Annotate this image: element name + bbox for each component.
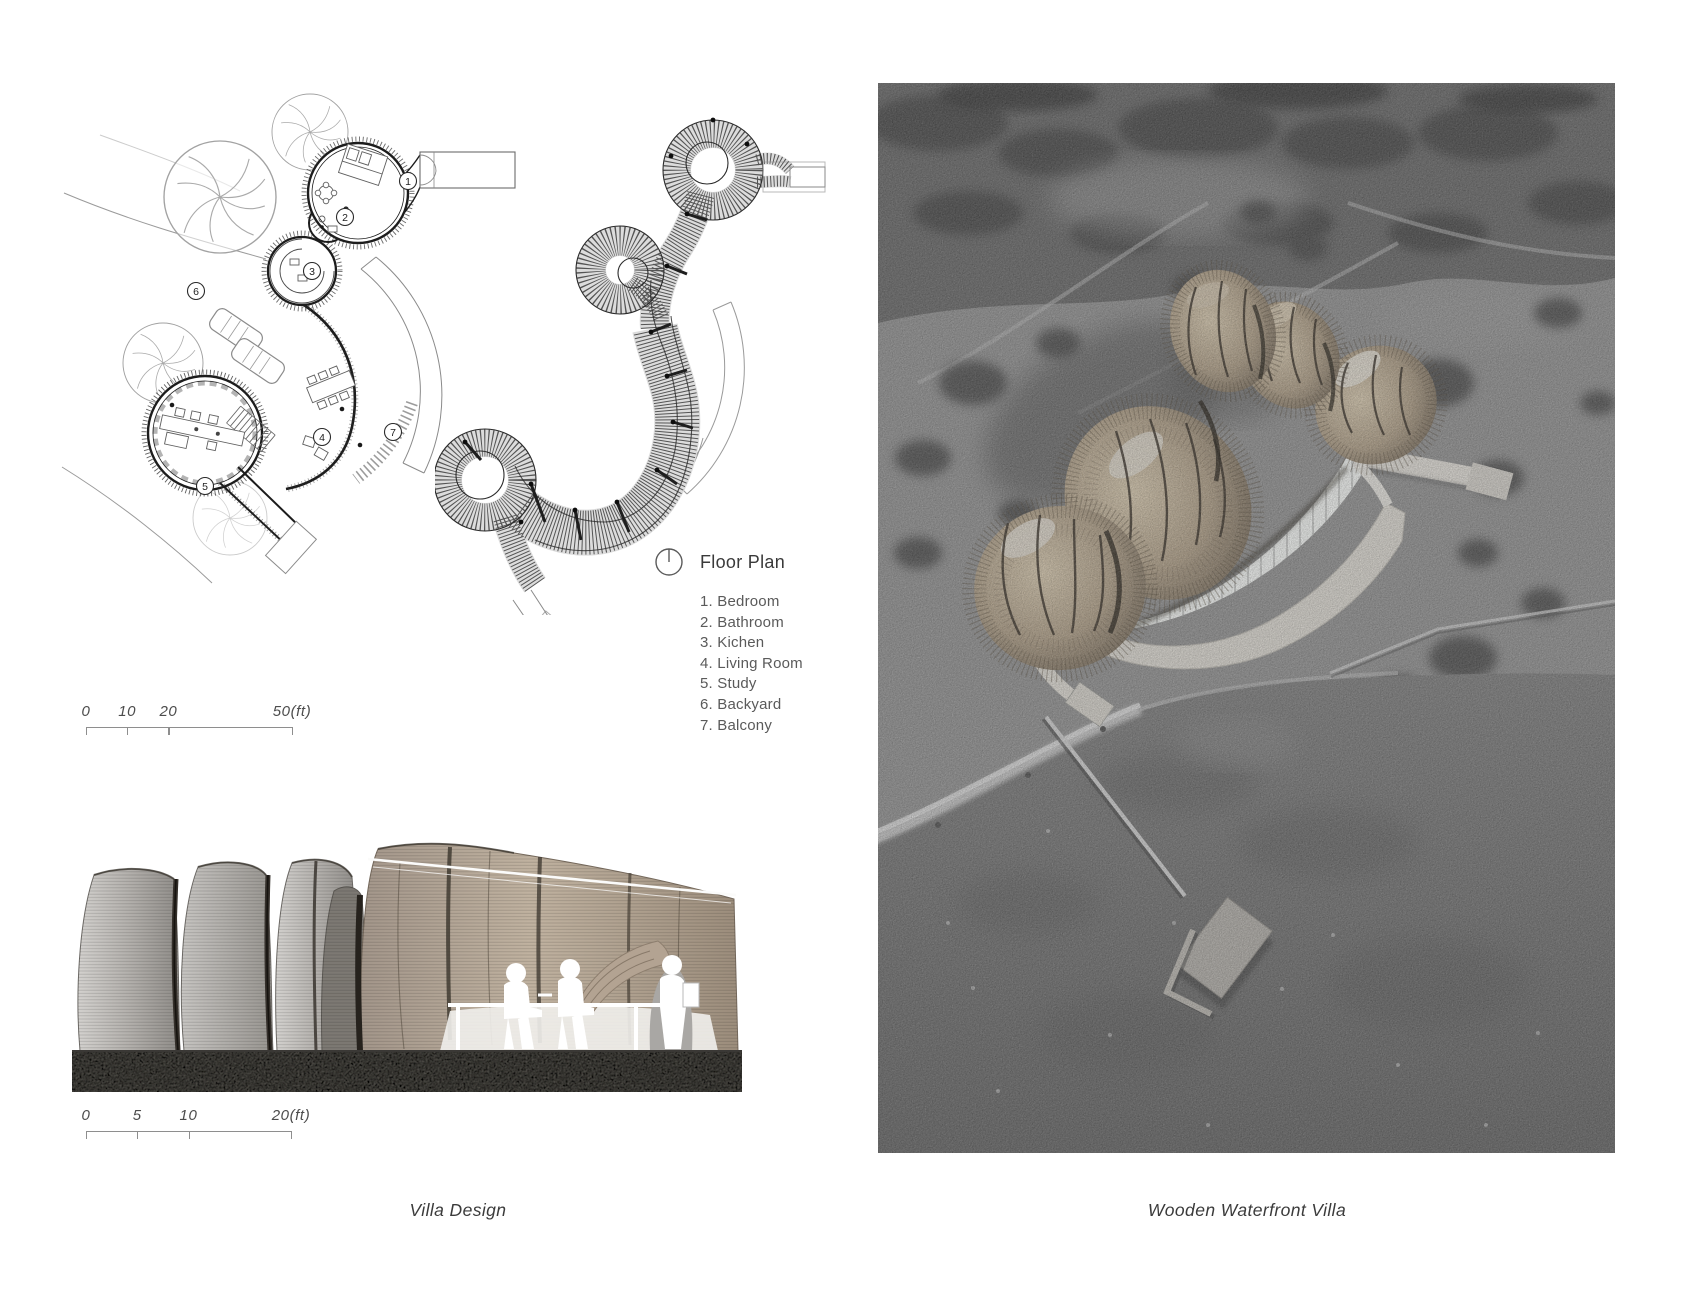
section-elevation (70, 835, 750, 1100)
segment-joints (463, 118, 750, 540)
rib-outlines (435, 120, 763, 551)
section-scalebar: 051020(ft) (86, 1104, 291, 1144)
legend-title: Floor Plan (700, 552, 785, 573)
scalebar-label: 0 (82, 1107, 91, 1124)
scalebar-label: 20(ft) (272, 1107, 311, 1124)
legend-item: 1. Bedroom (700, 592, 830, 613)
presentation-sheet: 1234567 (0, 0, 1700, 1306)
room-marker-number: 7 (390, 427, 396, 439)
legend-item: 3. Kichen (700, 633, 830, 654)
room-marker-number: 2 (342, 212, 348, 224)
floor-plan-structural (435, 70, 835, 615)
scalebar-tick (291, 1131, 292, 1139)
caption-left: Villa Design (288, 1200, 628, 1221)
scalebar-tick (127, 727, 128, 735)
legend-item: 6. Backyard (700, 695, 830, 716)
scalebar-label: 20 (159, 703, 177, 720)
scalebar-label: 0 (82, 703, 91, 720)
room-marker-number: 4 (319, 432, 325, 444)
legend-item: 2. Bathroom (700, 613, 830, 634)
ground-strip (72, 1050, 742, 1092)
room-marker-number: 5 (202, 481, 208, 493)
legend-item: 5. Study (700, 674, 830, 695)
scalebar-tick (189, 1131, 190, 1139)
grain-light (878, 83, 1615, 1153)
scalebar-label: 10 (180, 1107, 198, 1124)
legend-item: 4. Living Room (700, 654, 830, 675)
room-marker-number: 3 (309, 266, 315, 278)
scalebar-tick (86, 1131, 87, 1139)
scalebar-label: 50(ft) (273, 703, 312, 720)
north-indicator-icon (654, 547, 684, 577)
room-marker-number: 1 (405, 176, 411, 188)
parked-cars (207, 306, 287, 386)
caption-right: Wooden Waterfront Villa (1077, 1200, 1417, 1221)
balcony-arcs (356, 257, 442, 479)
legend-list: 1. Bedroom2. Bathroom3. Kichen4. Living … (700, 592, 830, 736)
scalebar-label: 10 (118, 703, 136, 720)
carried-board (683, 983, 699, 1007)
scalebar-label: 5 (133, 1107, 142, 1124)
room-marker-number: 6 (193, 286, 199, 298)
scalebar-tick (86, 727, 87, 735)
plan-scalebar: 0102050(ft) (86, 700, 292, 740)
scalebar-tick (168, 727, 169, 735)
aerial-render (878, 83, 1615, 1153)
scalebar-tick (137, 1131, 138, 1139)
legend-item: 7. Balcony (700, 716, 830, 737)
scalebar-tick (292, 727, 293, 735)
